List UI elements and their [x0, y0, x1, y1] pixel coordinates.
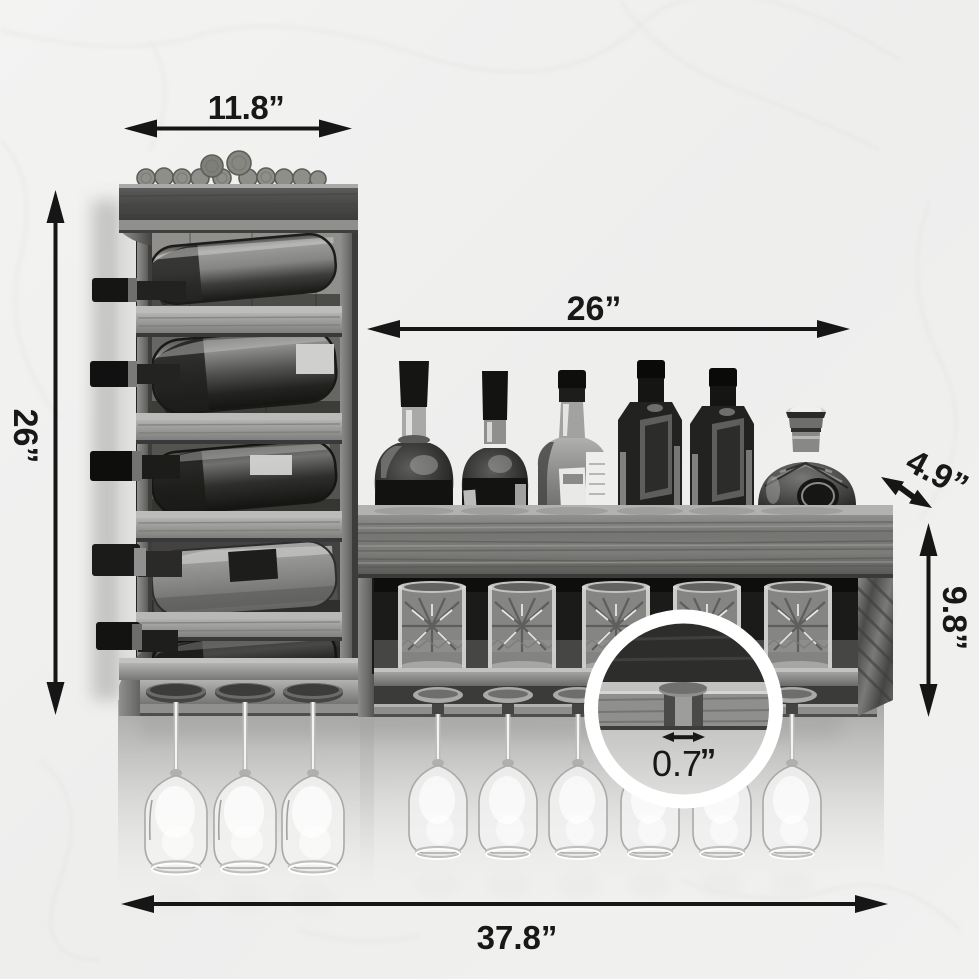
svg-text:37.8”: 37.8”: [477, 919, 558, 956]
svg-text:26”: 26”: [567, 290, 622, 328]
svg-text:0.7: 0.7: [652, 743, 702, 784]
svg-text:”: ”: [700, 742, 717, 779]
svg-text:26”: 26”: [6, 409, 44, 464]
svg-text:11.8”: 11.8”: [208, 89, 284, 126]
svg-text:9.8”: 9.8”: [935, 586, 973, 650]
